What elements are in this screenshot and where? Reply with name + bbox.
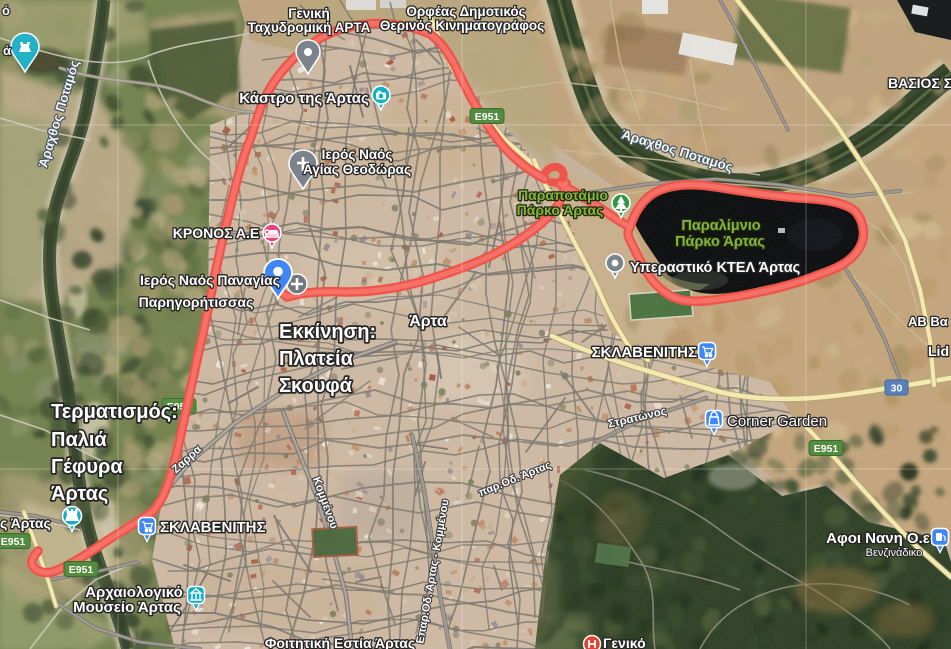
svg-text:ς Άρτας: ς Άρτας bbox=[0, 515, 51, 531]
svg-text:Πάρκο Άρτας: Πάρκο Άρτας bbox=[517, 202, 604, 218]
svg-text:Αγίας Θεοδώρας: Αγίας Θεοδώρας bbox=[303, 162, 411, 177]
svg-text:Ιερός Ναός Παναγίας: Ιερός Ναός Παναγίας bbox=[140, 272, 280, 288]
svg-text:Παραποτάμιο: Παραποτάμιο bbox=[518, 187, 608, 203]
svg-text:Μουσείο Άρτας: Μουσείο Άρτας bbox=[73, 599, 181, 616]
svg-text:Lid: Lid bbox=[928, 343, 949, 359]
svg-text:Σκουφά: Σκουφά bbox=[279, 375, 353, 397]
svg-text:30: 30 bbox=[891, 383, 903, 395]
svg-text:Παρηγορήτισσας: Παρηγορήτισσας bbox=[139, 294, 254, 310]
svg-text:Παραλίμνιο: Παραλίμνιο bbox=[681, 218, 760, 234]
svg-text:E951: E951 bbox=[69, 564, 94, 576]
svg-text:E951: E951 bbox=[1, 536, 26, 548]
svg-text:E951: E951 bbox=[814, 443, 839, 455]
svg-text:Γενική: Γενική bbox=[288, 6, 330, 21]
svg-text:ΣΚΛΑΒΕΝΙΤΗΣ: ΣΚΛΑΒΕΝΙΤΗΣ bbox=[160, 519, 266, 536]
svg-text:Πάρκο Άρτας: Πάρκο Άρτας bbox=[675, 234, 765, 250]
svg-text:Άρτας: Άρτας bbox=[51, 483, 108, 505]
svg-text:Κάστρο της Άρτας: Κάστρο της Άρτας bbox=[239, 90, 369, 107]
svg-text:Παλιά: Παλιά bbox=[51, 429, 107, 451]
svg-text:AB Βα: AB Βα bbox=[908, 314, 948, 329]
svg-text:Γέφυρα: Γέφυρα bbox=[51, 456, 123, 478]
svg-text:Ορφέας Δημοτικός: Ορφέας Δημοτικός bbox=[406, 4, 525, 19]
svg-text:ά: ά bbox=[3, 43, 11, 58]
svg-text:ΒΑΣΙΟΣ Σ: ΒΑΣΙΟΣ Σ bbox=[888, 75, 951, 91]
svg-text:Αφοι Νανη Ο.ε: Αφοι Νανη Ο.ε bbox=[826, 530, 930, 547]
svg-text:Τερματισμός:: Τερματισμός: bbox=[51, 401, 178, 423]
svg-text:Θερινός Κινηματογράφος: Θερινός Κινηματογράφος bbox=[380, 18, 544, 33]
svg-text:Φοιτητική Εστία Άρτας: Φοιτητική Εστία Άρτας bbox=[265, 635, 415, 649]
svg-text:Γενικό: Γενικό bbox=[603, 635, 646, 649]
svg-text:ό: ό bbox=[2, 3, 10, 18]
svg-text:Υπεραστικό ΚΤΕΛ Άρτας: Υπεραστικό ΚΤΕΛ Άρτας bbox=[630, 260, 800, 276]
svg-text:Άρτα: Άρτα bbox=[409, 313, 447, 330]
svg-text:ΚΡΟΝΟΣ Α.Ε: ΚΡΟΝΟΣ Α.Ε bbox=[173, 225, 259, 241]
svg-text:Ταχυδρομική ΑΡΤΑ: Ταχυδρομική ΑΡΤΑ bbox=[248, 20, 371, 35]
svg-text:Πλατεία: Πλατεία bbox=[279, 348, 354, 370]
svg-text:Βενζινάδικο: Βενζινάδικο bbox=[866, 547, 923, 559]
svg-text:ΣΚΛΑΒΕΝΙΤΗΣ: ΣΚΛΑΒΕΝΙΤΗΣ bbox=[591, 344, 697, 361]
svg-text:Εκκίνηση:: Εκκίνηση: bbox=[279, 321, 376, 343]
svg-text:Corner Garden: Corner Garden bbox=[727, 413, 827, 430]
svg-text:Ιερός Ναός: Ιερός Ναός bbox=[322, 147, 393, 162]
svg-text:E951: E951 bbox=[475, 111, 500, 123]
